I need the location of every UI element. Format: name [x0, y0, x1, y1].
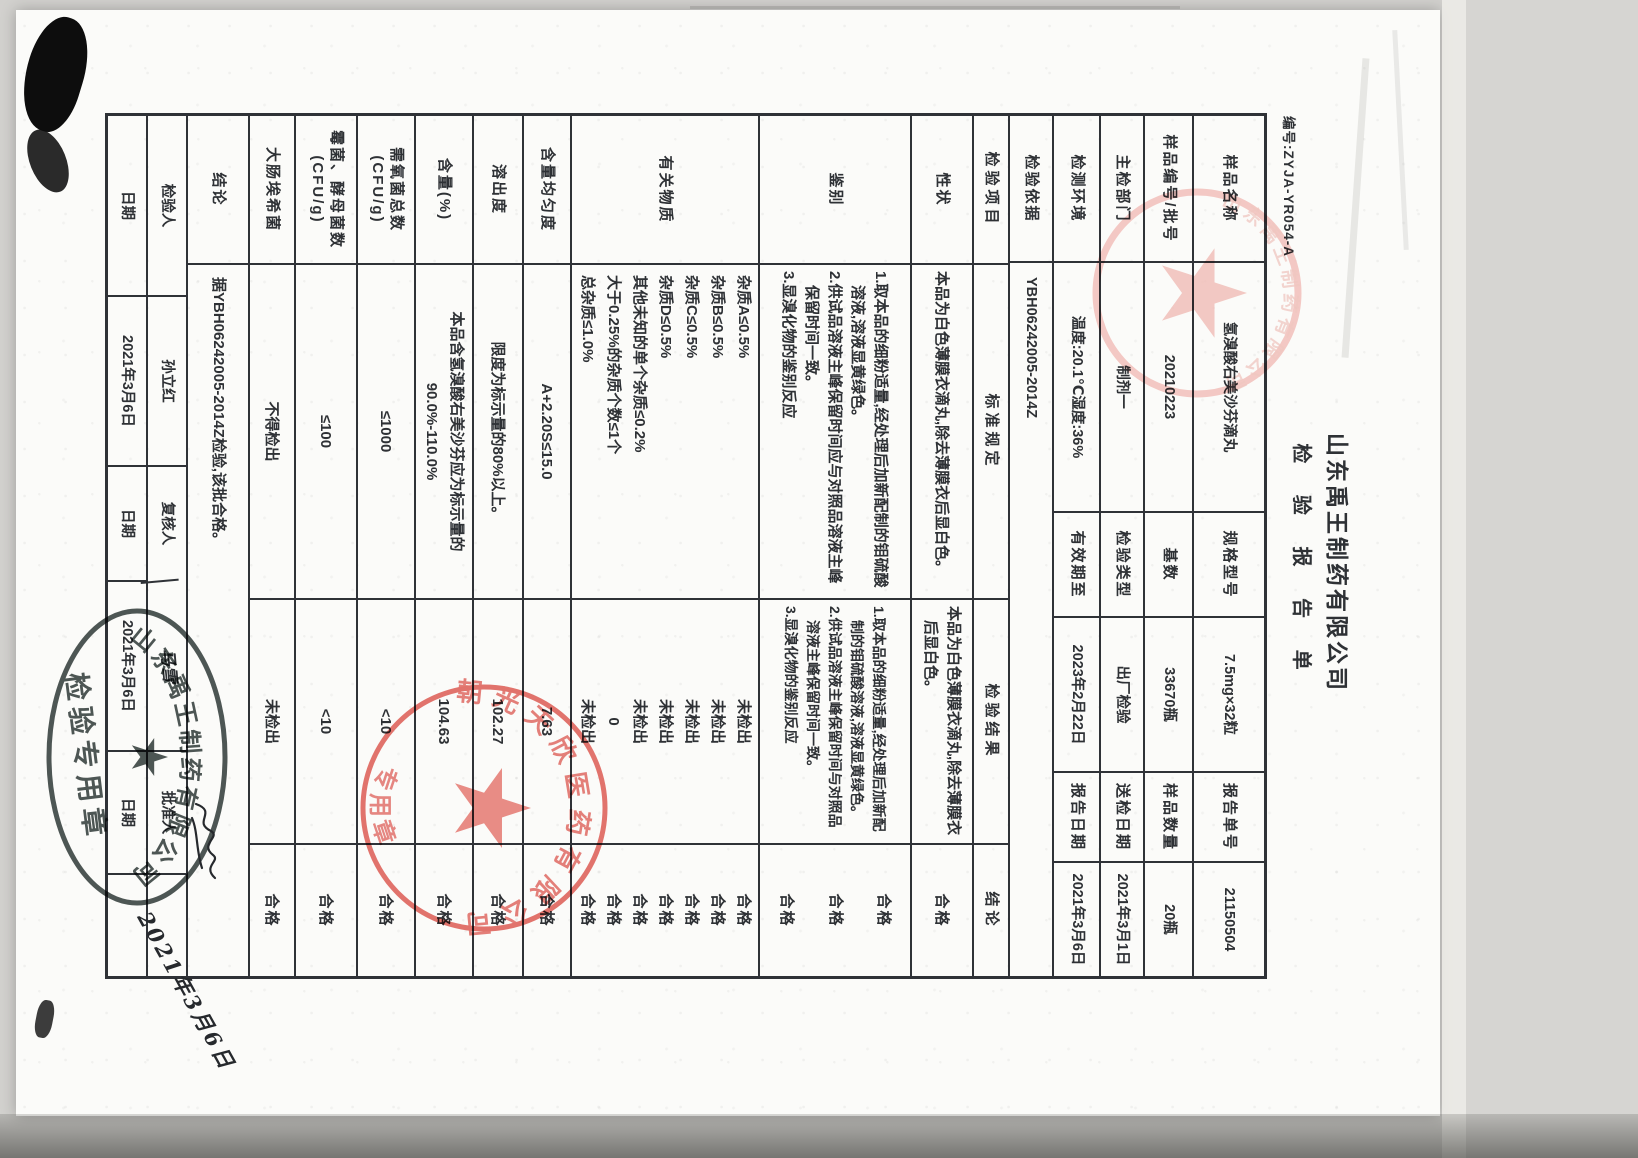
standard-line: 2.供试品溶液主峰保留时间应与对照品溶液主峰保留时间一致。: [801, 271, 847, 592]
standard-line: 大于0.25%的杂质个数≤1个: [600, 271, 626, 592]
scanned-page: 山东禹王制药有限公司 检 验 报 告 单 编号:ZYJA-YR054-A 样品名…: [16, 10, 1440, 1116]
page-edge-strip: [1442, 0, 1466, 1158]
standard-line: 总杂质≤1.0%: [574, 271, 600, 592]
info-value: 20瓶: [1145, 861, 1192, 976]
conclusion-line: 合格: [678, 893, 704, 927]
basis-value: YBH06242005-2014Z: [1010, 261, 1052, 976]
info-value: 21150504: [1194, 861, 1264, 976]
result-line: 2.供试品溶液主峰保留时间与对照品溶液主峰保留时间一致。: [802, 606, 846, 837]
result-cell: 104.63: [416, 598, 472, 843]
item-label: 含量(%): [416, 116, 472, 263]
conclusion-line: 合格: [535, 893, 560, 927]
conclusion-cell: 合格合格合格合格合格合格合格: [572, 843, 758, 976]
info-label: 检验类型: [1101, 511, 1143, 616]
approver-signature: [184, 798, 226, 890]
item-label: 有关物质: [572, 116, 758, 263]
conclusion-line: 合格: [930, 893, 955, 927]
info-value: 2023年2月22日: [1054, 616, 1099, 771]
info-row: 样品名称 氢溴酸右美沙芬滴丸 规格型号 7.5mg×32粒 报告单号 21150…: [1194, 116, 1264, 976]
conclusion-line: 合格: [774, 893, 799, 927]
column-header-item: 检验项目: [974, 116, 1008, 263]
main-rows: 性状 本品为白色薄膜衣滴丸,除去薄膜衣后显白色。 本品为白色薄膜衣滴丸,除去薄膜…: [250, 116, 974, 976]
conclusion-cell: 合格合格合格: [760, 843, 910, 976]
result-line: 0: [600, 717, 626, 725]
info-value: 温度:20.1℃湿度:36%: [1054, 261, 1099, 511]
table-row: 鉴别 1.取本品的细粉适量,经处理后加新配制的钼硫酸溶液,溶液显黄绿色。2.供试…: [760, 116, 912, 976]
table-row: 需氧菌总数(CFU/g) ≤1000 <10 合格: [358, 116, 416, 976]
final-conclusion-label: 结论: [188, 116, 248, 263]
signature-date-cell: 日期: [108, 116, 146, 295]
table-row: 性状 本品为白色薄膜衣滴丸,除去薄膜衣后显白色。 本品为白色薄膜衣滴丸,除去薄膜…: [912, 116, 974, 976]
result-cell: <10: [296, 598, 356, 843]
conclusion-cell: 合格: [474, 843, 522, 976]
signature-cell: 孙立红: [148, 295, 186, 465]
item-label: 霉菌、酵母菌数(CFU/g): [296, 116, 356, 263]
scanner-background: [1466, 0, 1638, 1158]
conclusion-line: 合格: [314, 893, 339, 927]
result-cell: 未检出未检出未检出未检出未检出0未检出: [572, 598, 758, 843]
standard-cell: 本品含氢溴酸右美沙芬应为标示量的90.0%-110.0%: [416, 263, 472, 598]
scan-top-line: [690, 6, 1180, 9]
info-label: 样品数量: [1145, 771, 1192, 861]
standard-line: 杂质B≤0.5%: [704, 271, 730, 592]
standard-line: 杂质A≤0.5%: [730, 271, 756, 592]
info-value: 氢溴酸右美沙芬滴丸: [1194, 261, 1264, 511]
table-row: 霉菌、酵母菌数(CFU/g) ≤100 <10 合格: [296, 116, 358, 976]
info-label: 规格型号: [1194, 511, 1264, 616]
basis-label: 检验依据: [1010, 116, 1052, 261]
info-value: 2021年3月6日: [1054, 861, 1099, 976]
signature-date-cell: 2021年3月6日: [108, 580, 146, 750]
info-label: 报告日期: [1054, 771, 1099, 861]
standard-cell: 本品为白色薄膜衣滴丸,除去薄膜衣后显白色。: [912, 263, 972, 598]
result-cell: 102.27: [474, 598, 522, 843]
info-label: 报告单号: [1194, 771, 1264, 861]
result-line: 未检出: [652, 699, 678, 744]
result-line: 未检出: [260, 699, 285, 744]
item-label: 性状: [912, 116, 972, 263]
standard-line: 本品含氢溴酸右美沙芬应为标示量的90.0%-110.0%: [419, 271, 469, 592]
conclusion-line: 合格: [574, 893, 600, 927]
standard-cell: ≤100: [296, 263, 356, 598]
info-row: 主检部门 制剂一 检验类型 出厂检验 送检日期 2021年3月1日: [1101, 116, 1145, 976]
standard-cell: A+2.20S≤15.0: [524, 263, 570, 598]
conclusion-cell: 合格: [296, 843, 356, 976]
document-number: 编号:ZYJA-YR054-A: [1280, 116, 1300, 257]
info-row: 检测环境 温度:20.1℃湿度:36% 有效期至 2023年2月22日 报告日期…: [1054, 116, 1101, 976]
conclusion-cell: 合格: [358, 843, 414, 976]
info-label: 主检部门: [1101, 116, 1143, 261]
result-line: 3.显溴化物的鉴别反应: [780, 606, 802, 837]
result-cell: 7.63: [524, 598, 570, 843]
info-row: 样品编号/批号 20210223 基数 33670瓶 样品数量 20瓶: [1145, 116, 1194, 976]
conclusion-line: 合格: [730, 893, 756, 927]
item-label: 鉴别: [760, 116, 910, 263]
signature-date-cell: 日期: [108, 750, 146, 873]
info-label: 检测环境: [1054, 116, 1099, 261]
scan-bottom-shadow: [0, 1114, 1638, 1158]
table-row: 有关物质 杂质A≤0.5%杂质B≤0.5%杂质C≤0.5%杂质D≤0.5%其他未…: [572, 116, 760, 976]
main-table-header: 检验项目 标准规定 检验结果 结论: [974, 116, 1010, 976]
result-line: 1.取本品的细粉适量,经处理后加新配制的钼硫酸溶液,溶液显黄绿色。: [846, 606, 890, 837]
conclusion-cell: 合格: [524, 843, 570, 976]
conclusion-cell: 合格: [416, 843, 472, 976]
standard-line: 3.显溴化物的鉴别反应: [778, 271, 801, 592]
info-label: 样品编号/批号: [1145, 116, 1192, 261]
info-value: 2021年3月1日: [1101, 861, 1143, 976]
conclusion-line: 合格: [374, 893, 399, 927]
result-line: 未检出: [626, 699, 652, 744]
table-row: 大肠埃希菌 不得检出 未检出 合格: [250, 116, 296, 976]
item-label: 溶出度: [474, 116, 522, 263]
table-row: 含量均匀度 A+2.20S≤15.0 7.63 合格: [524, 116, 572, 976]
conclusion-line: 合格: [600, 893, 626, 927]
signature-cell: 批准人: [148, 750, 186, 873]
result-line: 104.63: [432, 699, 457, 745]
conclusion-line: 合格: [823, 893, 848, 927]
inspection-report-document: 山东禹王制药有限公司 检 验 报 告 单 编号:ZYJA-YR054-A 样品名…: [16, 10, 1440, 1116]
signature-date-cell: 日期: [108, 465, 146, 580]
table-row: 溶出度 限度为标示量的80%以上。 102.27 合格: [474, 116, 524, 976]
item-label: 含量均匀度: [524, 116, 570, 263]
conclusion-line: 合格: [626, 893, 652, 927]
signature-cell: 检验人: [148, 116, 186, 295]
signature-cell: 马雪: [141, 579, 194, 752]
standard-cell: ≤1000: [358, 263, 414, 598]
standard-cell: 1.取本品的细粉适量,经处理后加新配制的钼硫酸溶液,溶液显黄绿色。2.供试品溶液…: [760, 263, 910, 598]
basis-row: 检验依据 YBH06242005-2014Z: [1010, 116, 1054, 976]
result-line: 未检出: [704, 699, 730, 744]
conclusion-line: 合格: [652, 893, 678, 927]
signature-row-dates: 日期2021年3月6日日期2021年3月6日日期: [108, 116, 148, 976]
info-value: 20210223: [1145, 261, 1192, 511]
column-header-standard: 标准规定: [974, 263, 1008, 598]
conclusion-cell: 合格: [250, 843, 294, 976]
signature-date-cell: 2021年3月6日: [108, 295, 146, 465]
item-label: 需氧菌总数(CFU/g): [358, 116, 414, 263]
standard-line: 本品为白色薄膜衣滴丸,除去薄膜衣后显白色。: [931, 271, 954, 592]
info-value: 33670瓶: [1145, 616, 1192, 771]
conclusion-cell: 合格: [912, 843, 972, 976]
result-line: <10: [374, 709, 399, 734]
standard-line: 其他未知的单个杂质≤0.2%: [626, 271, 652, 592]
standard-line: 杂质D≤0.5%: [652, 271, 678, 592]
conclusion-line: 合格: [486, 893, 511, 927]
result-line: 7.63: [535, 707, 560, 736]
standard-line: A+2.20S≤15.0: [535, 383, 560, 479]
info-value: 出厂检验: [1101, 616, 1143, 771]
result-cell: <10: [358, 598, 414, 843]
item-label: 大肠埃希菌: [250, 116, 294, 263]
result-line: <10: [314, 709, 339, 734]
standard-cell: 杂质A≤0.5%杂质B≤0.5%杂质C≤0.5%杂质D≤0.5%其他未知的单个杂…: [572, 263, 758, 598]
standard-cell: 限度为标示量的80%以上。: [474, 263, 522, 598]
result-line: 102.27: [486, 699, 511, 745]
info-label: 送检日期: [1101, 771, 1143, 861]
info-label: 样品名称: [1194, 116, 1264, 261]
info-label: 有效期至: [1054, 511, 1099, 616]
column-header-result: 检验结果: [974, 598, 1008, 843]
result-cell: 未检出: [250, 598, 294, 843]
info-value: 制剂一: [1101, 261, 1143, 511]
conclusion-line: 合格: [260, 893, 285, 927]
result-line: 未检出: [574, 699, 600, 744]
company-title: 山东禹王制药有限公司: [1322, 10, 1356, 1116]
conclusion-line: 合格: [871, 893, 896, 927]
result-cell: 本品为白色薄膜衣滴丸,除去薄膜衣后显白色。: [912, 598, 972, 843]
signature-row-names: 检验人孙立红复核人马雪批准人: [148, 116, 188, 976]
result-line: 未检出: [730, 699, 756, 744]
result-line: 本品为白色薄膜衣滴丸,除去薄膜衣后显白色。: [919, 606, 965, 837]
conclusion-line: 合格: [704, 893, 730, 927]
report-table: 样品名称 氢溴酸右美沙芬滴丸 规格型号 7.5mg×32粒 报告单号 21150…: [105, 113, 1267, 979]
standard-line: 1.取本品的细粉适量,经处理后加新配制的钼硫酸溶液,溶液显黄绿色。: [847, 271, 893, 592]
conclusion-line: 合格: [432, 893, 457, 927]
table-row: 含量(%) 本品含氢溴酸右美沙芬应为标示量的90.0%-110.0% 104.6…: [416, 116, 474, 976]
info-label: 基数: [1145, 511, 1192, 616]
standard-line: ≤100: [314, 415, 339, 448]
signature-cell: 复核人: [148, 465, 186, 580]
info-value: 7.5mg×32粒: [1194, 616, 1264, 771]
scanned-report-viewport: 山东禹王制药有限公司 检 验 报 告 单 编号:ZYJA-YR054-A 样品名…: [0, 0, 1638, 1158]
standard-line: 限度为标示量的80%以上。: [486, 341, 511, 521]
standard-cell: 不得检出: [250, 263, 294, 598]
column-header-conclusion: 结论: [974, 843, 1008, 976]
result-cell: 1.取本品的细粉适量,经处理后加新配制的钼硫酸溶液,溶液显黄绿色。2.供试品溶液…: [760, 598, 910, 843]
standard-line: 杂质C≤0.5%: [678, 271, 704, 592]
standard-line: 不得检出: [260, 401, 285, 461]
standard-line: ≤1000: [374, 411, 399, 453]
result-line: 未检出: [678, 699, 704, 744]
